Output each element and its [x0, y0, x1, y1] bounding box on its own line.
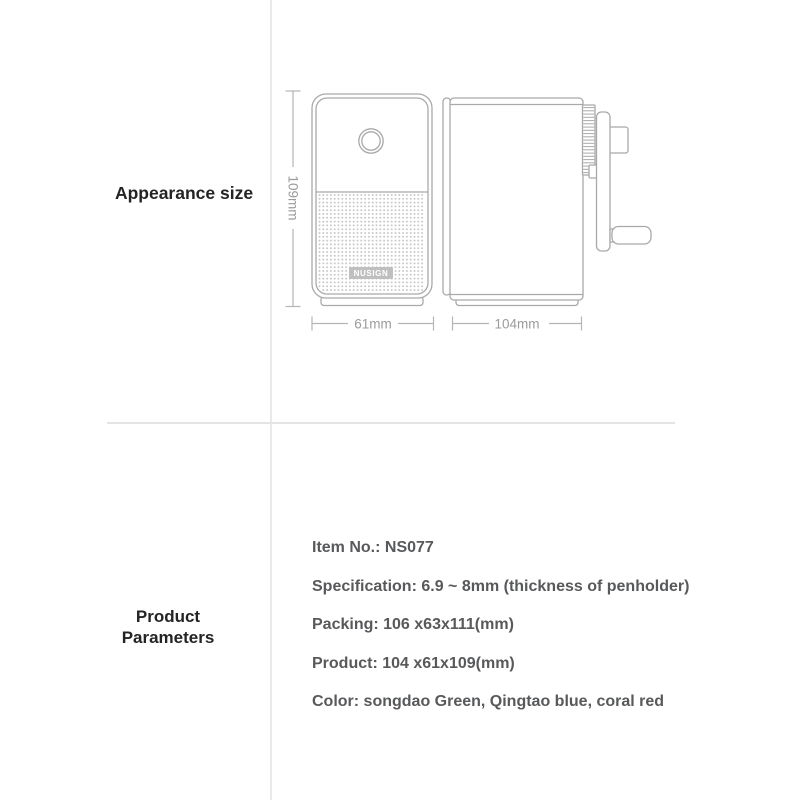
dimension-depth-label: 104mm: [494, 317, 539, 332]
dimension-height: 109mm: [286, 91, 301, 307]
brand-logo-text: NUSIGN: [354, 269, 389, 278]
side-view-drawing: [443, 98, 651, 306]
dimension-drawing: NUSIGN 109mm: [280, 78, 660, 338]
product-spec-page: Appearance size NUSIGN: [0, 0, 800, 800]
dimension-height-label: 109mm: [286, 175, 301, 220]
crank-arm: [597, 112, 611, 251]
appearance-size-label: Appearance size: [94, 183, 274, 204]
dimension-width: 61mm: [312, 317, 434, 332]
crank-handle: [612, 227, 651, 245]
vertical-divider: [270, 0, 272, 800]
param-product-size: Product: 104 x61x109(mm): [312, 645, 752, 684]
horizontal-divider: [107, 422, 675, 424]
param-packing: Packing: 106 x63x111(mm): [312, 606, 752, 645]
front-view-drawing: NUSIGN: [312, 94, 432, 306]
param-color: Color: songdao Green, Qingtao blue, cora…: [312, 683, 752, 722]
product-parameters-label-line2: Parameters: [78, 627, 258, 648]
side-body: [450, 98, 583, 300]
dimension-depth: 104mm: [453, 317, 582, 332]
dimension-width-label: 61mm: [354, 317, 392, 332]
product-parameters-label-line1: Product: [78, 606, 258, 627]
param-specification: Specification: 6.9 ~ 8mm (thickness of p…: [312, 568, 752, 607]
param-item-no: Item No.: NS077: [312, 529, 752, 568]
gear-knurl-lines: [583, 108, 594, 173]
crank-pivot-block: [608, 127, 628, 153]
parameter-list: Item No.: NS077 Specification: 6.9 ~ 8mm…: [312, 529, 752, 722]
product-parameters-label: Product Parameters: [78, 606, 258, 648]
